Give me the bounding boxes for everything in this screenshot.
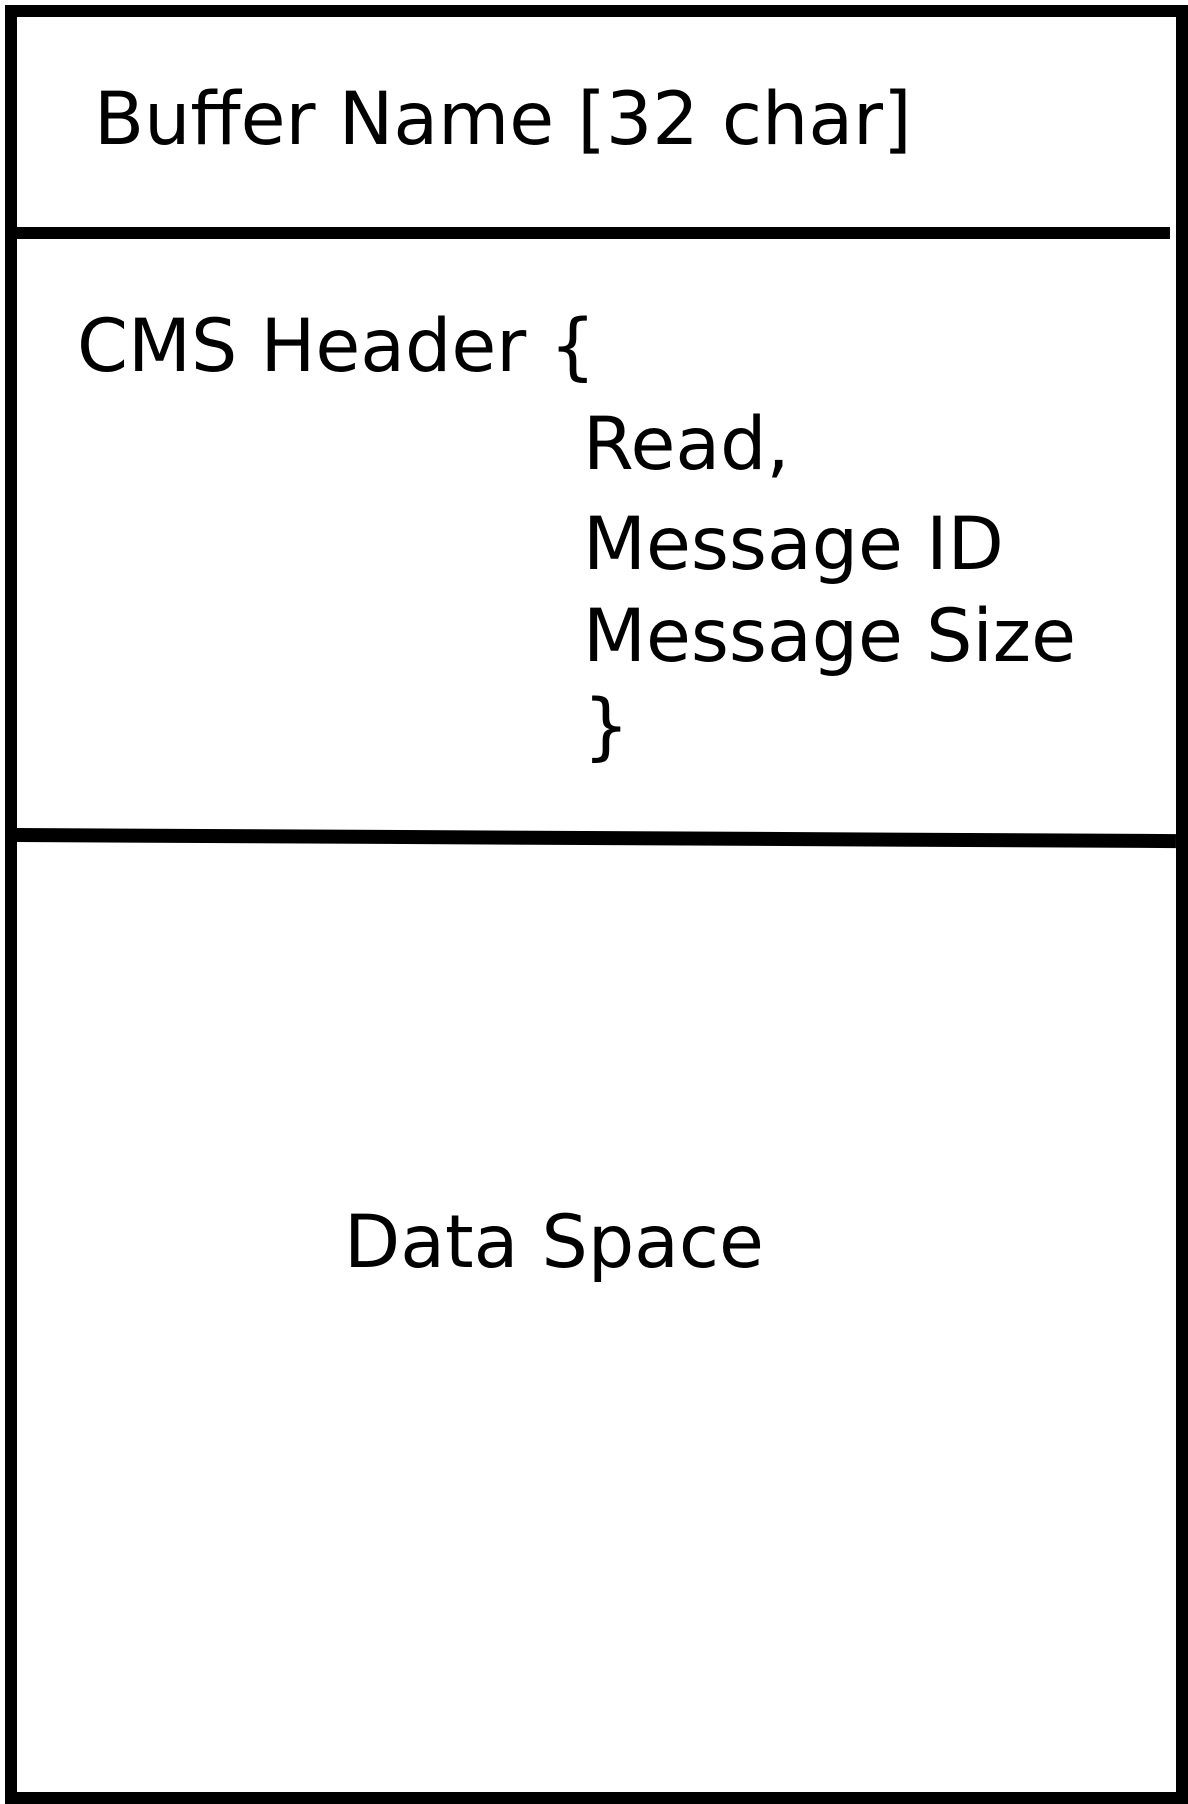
cms-field-message-id: Message ID <box>583 508 1004 581</box>
buffer-layout-diagram: Buffer Name [32 char] CMS Header { Read,… <box>0 0 1188 1804</box>
cms-field-message-size: Message Size <box>583 600 1076 673</box>
buffer-name-label: Buffer Name [32 char] <box>94 83 912 156</box>
divider-buffer-name-cms-header <box>17 227 1170 239</box>
data-space-label: Data Space <box>344 1206 764 1279</box>
cms-header-label: CMS Header { <box>77 310 596 383</box>
cms-field-read: Read, <box>583 408 790 481</box>
cms-header-closing-brace: } <box>583 690 629 763</box>
outer-border <box>5 5 1188 1804</box>
